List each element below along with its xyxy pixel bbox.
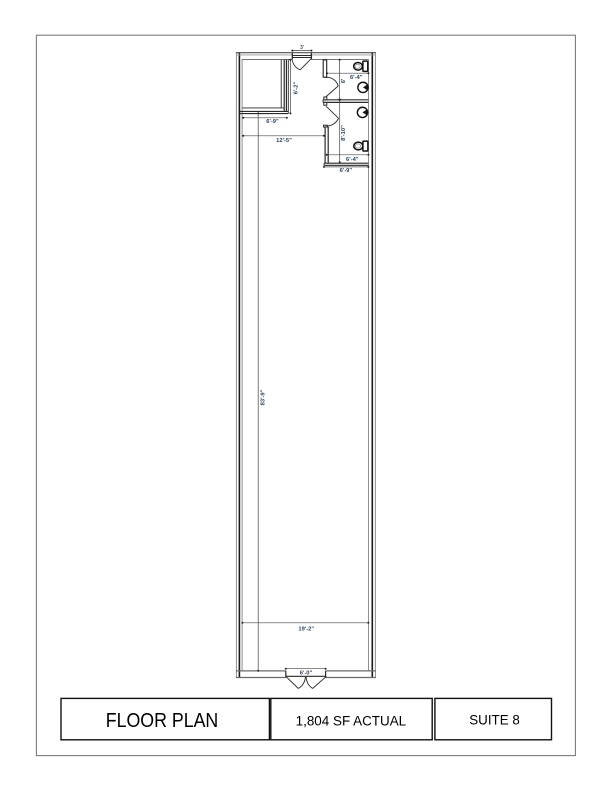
svg-text:6'-4": 6'-4" xyxy=(346,157,359,163)
svg-text:3': 3' xyxy=(300,45,304,51)
svg-text:19'-2": 19'-2" xyxy=(298,627,314,633)
svg-text:6'-9": 6'-9" xyxy=(266,119,279,125)
svg-text:6': 6' xyxy=(341,78,347,83)
svg-text:FLOOR PLAN: FLOOR PLAN xyxy=(106,710,219,732)
svg-text:6'-4": 6'-4" xyxy=(350,75,363,81)
svg-text:83'-9": 83'-9" xyxy=(260,389,266,405)
svg-text:6'-9": 6'-9" xyxy=(340,168,353,174)
svg-text:8'-10": 8'-10" xyxy=(341,125,347,141)
svg-text:SUITE 8: SUITE 8 xyxy=(469,713,520,728)
svg-text:6'-0": 6'-0" xyxy=(300,670,313,676)
svg-text:1,804 SF ACTUAL: 1,804 SF ACTUAL xyxy=(296,713,407,728)
svg-text:12'-5": 12'-5" xyxy=(276,138,292,144)
svg-text:6'-2": 6'-2" xyxy=(293,82,299,95)
